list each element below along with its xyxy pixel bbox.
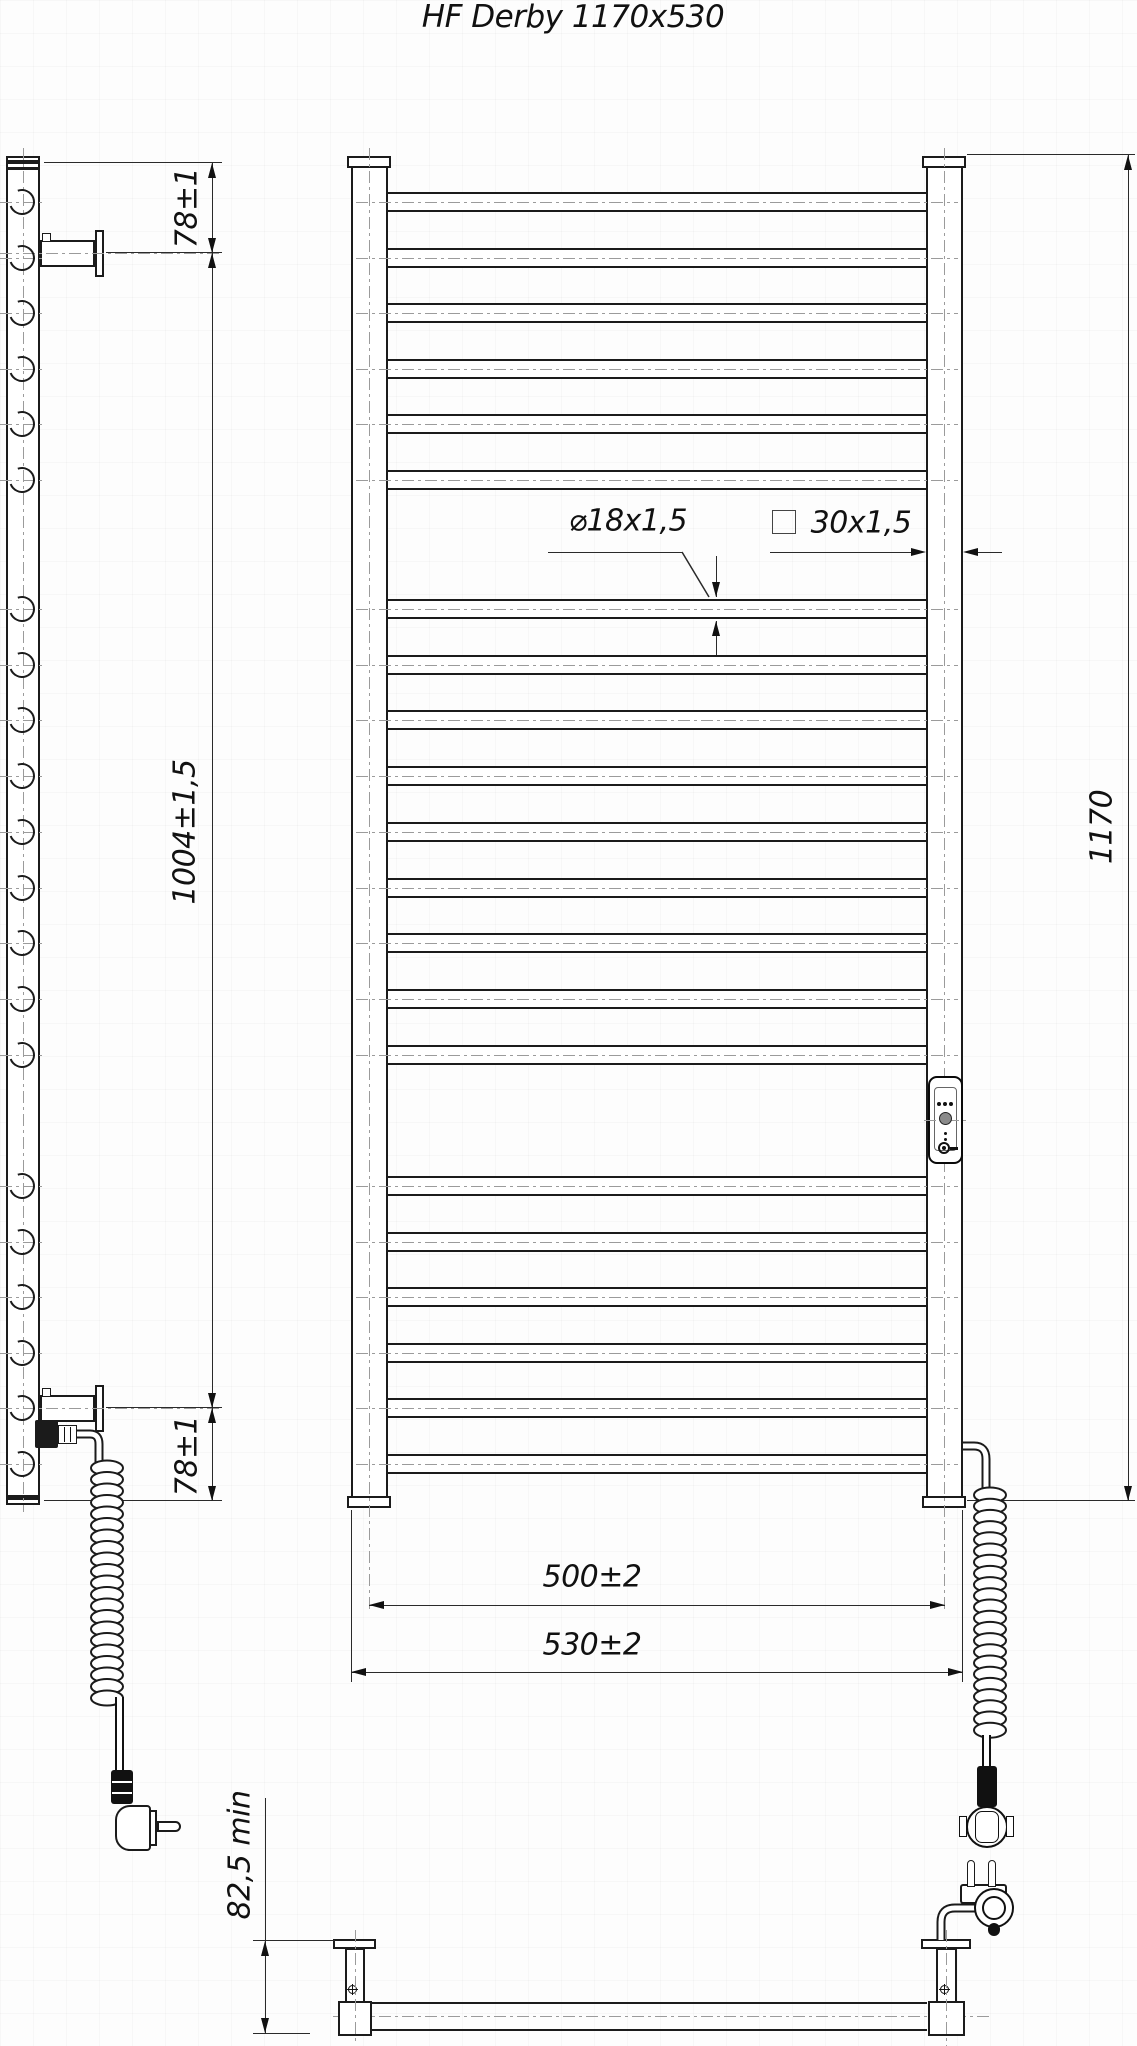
plug-pin: [988, 1860, 996, 1887]
coil-loop: [974, 1633, 1006, 1648]
coiled-cable-right: [974, 1488, 1006, 1738]
dim-line: [978, 552, 1002, 553]
coil-loop: [91, 1633, 123, 1648]
plug-end-view-inner: [975, 1811, 999, 1843]
coil-loop: [91, 1622, 123, 1637]
towel-bar-centerline: [356, 609, 958, 610]
ext-line: [967, 154, 1135, 155]
towel-bar-centerline: [356, 943, 958, 944]
coil-loop: [974, 1689, 1006, 1704]
coil-loop: [91, 1518, 123, 1533]
heating-element-block: [35, 1420, 58, 1448]
panel-led-dot: [943, 1102, 947, 1106]
dim-side-mount-span: 1004±1,5: [168, 759, 203, 904]
cable-right: [982, 1735, 991, 1768]
towel-bar-centerline: [356, 1297, 958, 1298]
towel-bar-centerline: [356, 1464, 958, 1465]
dim-bar-spec: ⌀18x1,5: [569, 504, 687, 539]
coil-loop: [91, 1530, 123, 1545]
ext-line: [44, 1500, 222, 1501]
bracket-centerline: [355, 1930, 356, 2042]
towel-bar-centerline: [356, 832, 958, 833]
square-section-icon: [772, 510, 796, 534]
dim-total-height: 1170: [1085, 790, 1120, 864]
panel-timer-lever: [950, 1147, 958, 1150]
ferrule-rib: [112, 1792, 132, 1794]
dim-overall-width: 530±2: [543, 1628, 642, 1663]
coil-loop: [91, 1656, 123, 1671]
panel-timer-center: [942, 1146, 946, 1150]
leader-line: [548, 552, 682, 553]
coil-loop: [974, 1644, 1006, 1659]
dim-line: [770, 552, 911, 553]
cable-ferrule-right: [977, 1766, 997, 1807]
panel-knob: [939, 1112, 952, 1125]
arrowhead: [712, 582, 720, 597]
dim-wall-distance: 82,5 min: [223, 1791, 258, 1920]
coil-loop: [974, 1678, 1006, 1693]
drawing-title: HF Derby 1170x530: [422, 0, 724, 35]
arrowhead: [208, 1408, 216, 1423]
towel-bar-centerline: [356, 1353, 958, 1354]
arrowhead: [369, 1601, 384, 1609]
towel-bar-centerline: [356, 720, 958, 721]
towel-bar-centerline: [356, 888, 958, 889]
ext-line: [253, 2033, 310, 2034]
ext-line: [962, 1510, 963, 1682]
right-post-centerline: [944, 148, 945, 1612]
dim-center-width: 500±2: [543, 1560, 642, 1595]
coil-loop: [974, 1622, 1006, 1637]
coil-loop: [91, 1599, 123, 1614]
plug-pin: [967, 1860, 975, 1887]
towel-bar-centerline: [356, 1186, 958, 1187]
towel-bar-centerline: [356, 202, 958, 203]
coil-loop: [91, 1587, 123, 1602]
towel-bar-centerline: [356, 369, 958, 370]
coil-loop: [974, 1712, 1006, 1727]
coil-loop: [91, 1679, 123, 1694]
coil-loop: [91, 1564, 123, 1579]
coil-loop: [91, 1507, 123, 1522]
towel-bar-centerline: [356, 999, 958, 1000]
panel-dot: [944, 1132, 947, 1135]
panel-led-dot: [937, 1102, 941, 1106]
arrowhead: [911, 548, 926, 556]
arrowhead: [208, 1393, 216, 1408]
arrowhead: [930, 1601, 945, 1609]
screw-cross: [347, 1989, 358, 1990]
dim-line-wall-distance: [265, 1798, 266, 2034]
bracket-centerline: [946, 1930, 947, 2046]
cable-gland-rib: [70, 1427, 71, 1442]
arrowhead: [948, 1668, 963, 1676]
plug-bottom-view-latch: [988, 1923, 1000, 1936]
elbow-tube-right: [963, 1446, 986, 1495]
panel-dot: [944, 1138, 947, 1141]
towel-bar-centerline: [356, 258, 958, 259]
dim-side-top-offset: 78±1: [170, 168, 205, 248]
dim-side-bottom-offset: 78±1: [170, 1416, 205, 1496]
towel-bar-centerline: [356, 1408, 958, 1409]
power-plug-side-body: [115, 1805, 151, 1851]
ferrule-rib: [112, 1781, 132, 1783]
cable-ferrule-left: [111, 1770, 133, 1804]
coil-loop: [974, 1566, 1006, 1581]
dim-line-center-width: [369, 1605, 945, 1606]
rail-tube-edge: [371, 2029, 927, 2031]
coil-loop: [974, 1577, 1006, 1592]
arrowhead: [1124, 1486, 1132, 1501]
arrowhead: [351, 1668, 366, 1676]
coil-loop: [974, 1588, 1006, 1603]
coil-loop: [91, 1576, 123, 1591]
arrowhead: [261, 1941, 269, 1956]
screw-cross: [939, 1989, 950, 1990]
coil-loop: [974, 1521, 1006, 1536]
technical-drawing-canvas: HF Derby 1170x530: [0, 0, 1137, 2046]
coil-loop: [91, 1495, 123, 1510]
coil-loop: [974, 1667, 1006, 1682]
ext-line: [351, 1510, 352, 1682]
dim-line-side-chain: [212, 163, 213, 1501]
ext-line: [44, 162, 222, 163]
power-plug-face: [149, 1810, 157, 1846]
coil-loop: [974, 1532, 1006, 1547]
towel-bar-centerline: [356, 313, 958, 314]
arrowhead: [208, 253, 216, 268]
rail-centerline: [333, 2016, 993, 2017]
arrowhead: [261, 2018, 269, 2033]
towel-bar-centerline: [356, 1242, 958, 1243]
ext-line: [967, 1500, 1135, 1501]
coil-loop: [91, 1645, 123, 1660]
ext-line: [106, 1407, 222, 1408]
arrowhead: [1124, 155, 1132, 170]
towel-bar-centerline: [356, 776, 958, 777]
coil-loop: [974, 1656, 1006, 1671]
coil-loop: [91, 1541, 123, 1556]
rail-tube-edge: [371, 2002, 927, 2004]
cable-left: [115, 1697, 124, 1773]
left-post-centerline: [369, 148, 370, 1612]
towel-bar-centerline: [356, 665, 958, 666]
dim-line-total-height: [1128, 155, 1129, 1501]
coil-loop: [91, 1553, 123, 1568]
coil-loop: [91, 1484, 123, 1499]
towel-bar-centerline: [356, 424, 958, 425]
plug-side-tab: [959, 1816, 967, 1837]
top-bracket-screw: [42, 233, 51, 242]
cable-gland: [58, 1425, 77, 1444]
coil-loop: [91, 1610, 123, 1625]
coil-loop: [974, 1700, 1006, 1715]
panel-led-dot: [949, 1102, 953, 1106]
towel-bar-centerline: [356, 1055, 958, 1056]
coil-loop: [974, 1555, 1006, 1570]
arrowhead: [712, 621, 720, 636]
elbow-tube-left: [76, 1434, 99, 1466]
plug-bottom-view-ring-inner: [982, 1896, 1006, 1920]
arrowhead: [208, 238, 216, 253]
coil-loop: [974, 1600, 1006, 1615]
coil-loop: [91, 1461, 123, 1476]
coil-loop: [91, 1668, 123, 1683]
coil-loop: [974, 1611, 1006, 1626]
bottom-bracket-screw: [42, 1388, 51, 1397]
dim-post-spec: 30x1,5: [811, 506, 912, 541]
arrowhead: [208, 163, 216, 178]
coil-loop: [974, 1510, 1006, 1525]
arrowhead: [963, 548, 978, 556]
power-plug-pin: [157, 1821, 181, 1832]
arrowhead: [208, 1486, 216, 1501]
ext-line: [106, 252, 222, 253]
coil-loop: [91, 1472, 123, 1487]
coiled-cable-left: [91, 1461, 123, 1706]
leader-diagonal: [682, 552, 709, 597]
cable-gland-rib: [64, 1427, 65, 1442]
dim-line-overall-width: [351, 1672, 963, 1673]
coil-loop: [974, 1544, 1006, 1559]
plug-side-tab: [1006, 1816, 1014, 1837]
towel-bar-centerline: [356, 480, 958, 481]
